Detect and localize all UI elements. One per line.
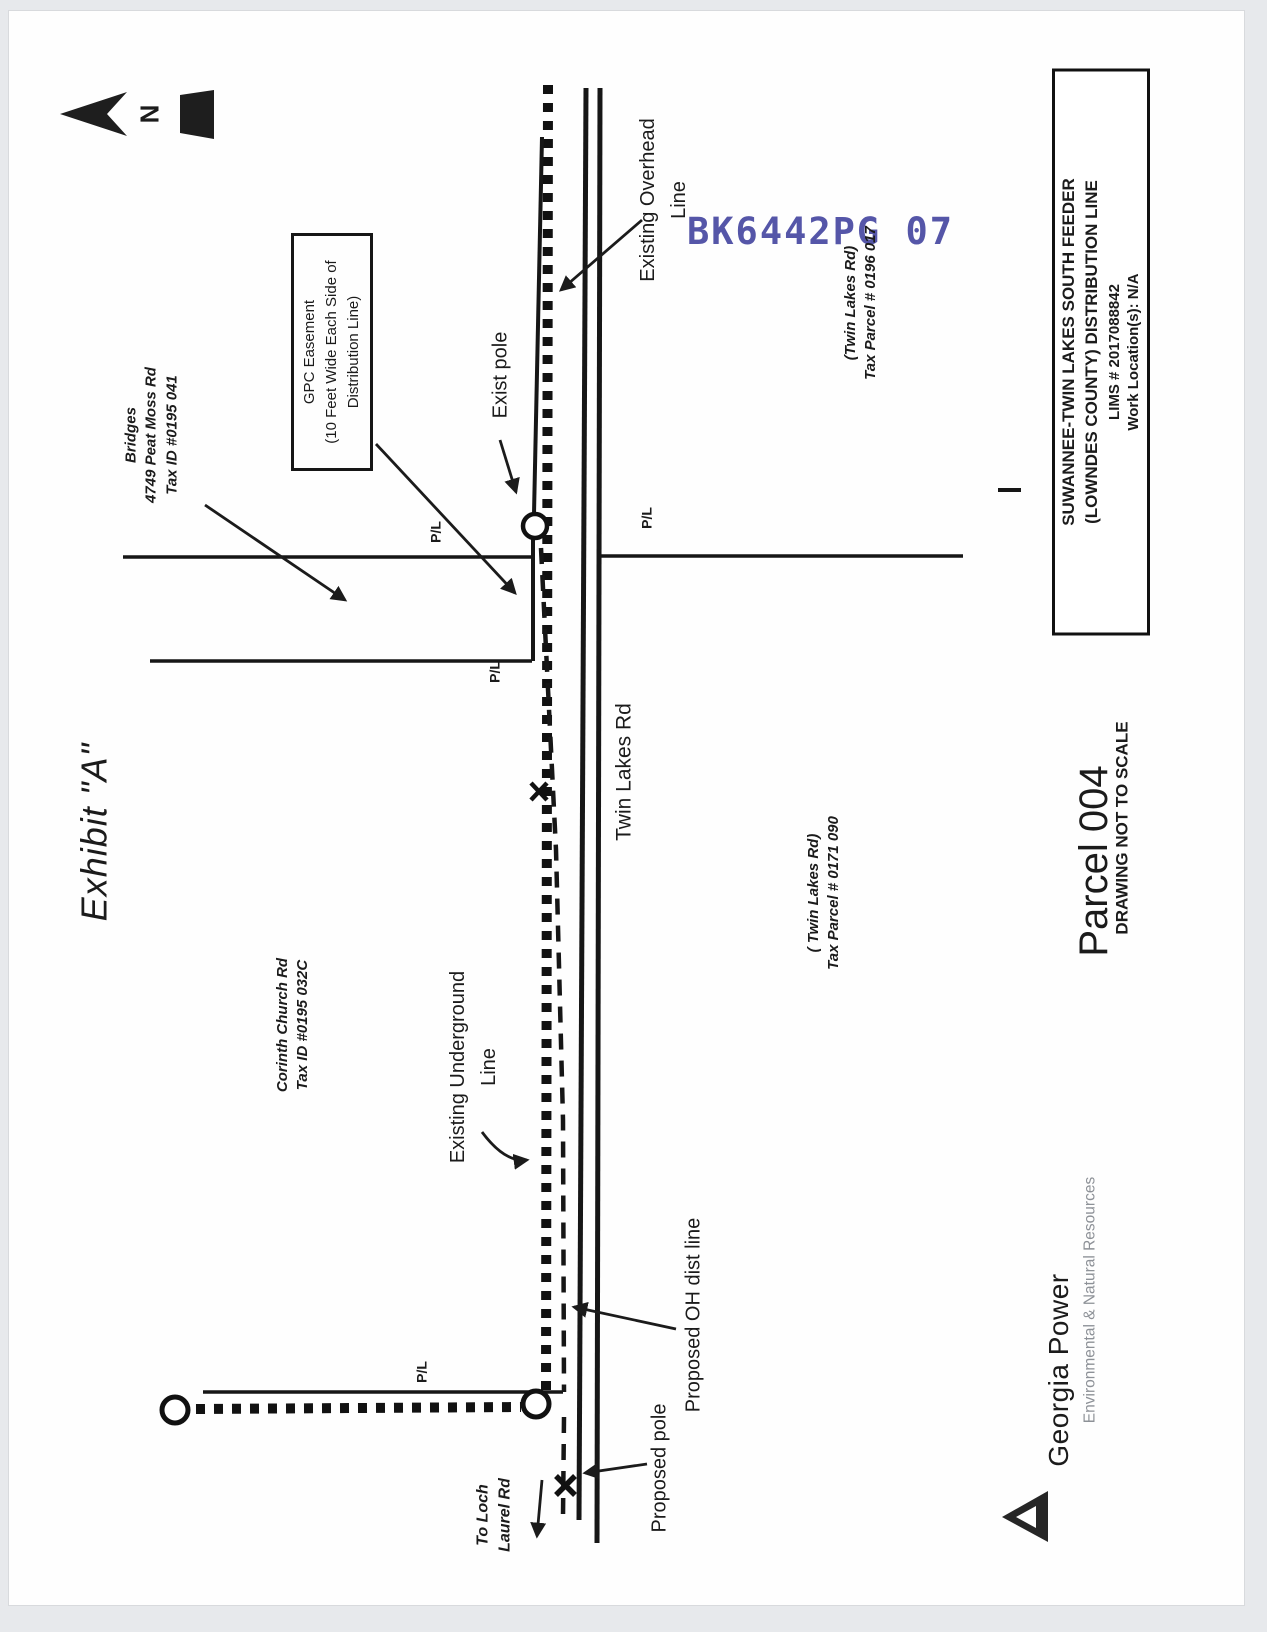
title-block-lims: LIMS # 2017088842	[1105, 72, 1125, 633]
property-line-marker-4: P/L	[413, 1361, 432, 1383]
property-line-marker-2: P/L	[638, 507, 657, 529]
proposed-pole-symbol	[523, 1391, 549, 1417]
exist-pole-label: Exist pole	[486, 332, 517, 419]
title-block-line1: SUWANNEE-TWIN LAKES SOUTH FEEDER	[1058, 72, 1080, 633]
proposed-pole-label: Proposed pole	[645, 1404, 676, 1533]
department-label: Environmental & Natural Resources	[1081, 1177, 1102, 1423]
exist-pole-arrow	[500, 440, 516, 492]
road-edge-line-west	[579, 88, 586, 1520]
easement-note-line2: (10 Feet Wide Each Side of	[321, 236, 343, 468]
existing-overhead-line2: Line	[664, 118, 695, 281]
recording-stamp: BK6442PG 07	[687, 210, 954, 253]
north-label: N	[132, 105, 167, 124]
parcel-0196-tax: Tax Parcel # 0196 017	[861, 226, 881, 380]
georgia-power-wordmark: Georgia Power	[1040, 1273, 1078, 1466]
exist-pole-symbol	[523, 514, 547, 538]
proposed-oh-arrow	[574, 1307, 676, 1329]
proposed-pole-arrow	[585, 1464, 647, 1473]
pole-symbol-west	[162, 1397, 188, 1423]
gpc-easement-note-box: GPC Easement (10 Feet Wide Each Side of …	[291, 233, 373, 471]
to-loch-line1: To Loch	[472, 1478, 494, 1552]
easement-note-line3: Distribution Line)	[343, 236, 365, 468]
bridges-tax-id: Tax ID #0195 041	[162, 367, 182, 503]
title-block-work-location: Work Location(s): N/A	[1124, 72, 1144, 633]
property-line-marker-3: P/L	[486, 661, 505, 683]
easement-note-line1: GPC Easement	[299, 236, 321, 468]
parcel-0171-tax: Tax Parcel # 0171 090	[824, 816, 844, 970]
corinth-tax-id: Tax ID #0195 032C	[293, 958, 313, 1092]
bridges-name: Bridges	[122, 367, 142, 503]
road-name-label: Twin Lakes Rd	[609, 703, 642, 841]
parcel-0171-road: ( Twin Lakes Rd)	[804, 816, 824, 970]
existing-underground-line-dotted-west	[196, 1407, 521, 1409]
north-arrow-icon	[60, 92, 127, 136]
title-block: SUWANNEE-TWIN LAKES SOUTH FEEDER (LOWNDE…	[1052, 69, 1150, 636]
to-loch-laurel-direction-arrow	[537, 1480, 542, 1536]
proposed-oh-dist-line-south	[563, 1417, 564, 1516]
existing-overhead-label: Existing Overhead Line	[633, 118, 695, 281]
to-loch-line2: Laurel Rd	[494, 1478, 516, 1552]
existing-underground-label: Existing Underground Line	[443, 971, 505, 1163]
parcel-0196-road: (Twin Lakes Rd)	[841, 226, 861, 380]
not-to-scale-note: DRAWING NOT TO SCALE	[1112, 721, 1135, 934]
existing-underground-line2: Line	[474, 971, 505, 1163]
road-edge-line-east	[597, 88, 600, 1543]
property-line-marker-1: P/L	[427, 521, 446, 543]
proposed-oh-label: Proposed OH dist line	[679, 1218, 710, 1413]
existing-underground-line1: Existing Underground	[443, 971, 474, 1163]
bridges-address: 4749 Peat Moss Rd	[142, 367, 162, 503]
exhibit-title: Exhibit "A"	[71, 743, 120, 922]
corinth-road: Corinth Church Rd	[273, 958, 293, 1092]
parcel-0196-label: (Twin Lakes Rd) Tax Parcel # 0196 017	[841, 226, 882, 380]
title-block-line2: (LOWNDES COUNTY) DISTRIBUTION LINE	[1081, 72, 1103, 633]
parcel-0171-label: ( Twin Lakes Rd) Tax Parcel # 0171 090	[804, 816, 845, 970]
bridges-parcel-arrow	[205, 505, 345, 600]
existing-overhead-line	[534, 137, 542, 514]
north-arrow-tail	[180, 90, 214, 139]
to-loch-laurel-label: To Loch Laurel Rd	[472, 1478, 515, 1552]
corinth-parcel-label: Corinth Church Rd Tax ID #0195 032C	[273, 958, 314, 1092]
existing-overhead-line1: Existing Overhead	[633, 118, 664, 281]
scanned-exhibit-page: N Exhibit "A" Bridges 4749 Peat Moss Rd …	[0, 0, 1267, 1632]
existing-underground-line-dotted	[546, 85, 548, 1392]
bridges-parcel-label: Bridges 4749 Peat Moss Rd Tax ID #0195 0…	[122, 367, 183, 503]
gpc-easement-arrow	[376, 444, 515, 593]
